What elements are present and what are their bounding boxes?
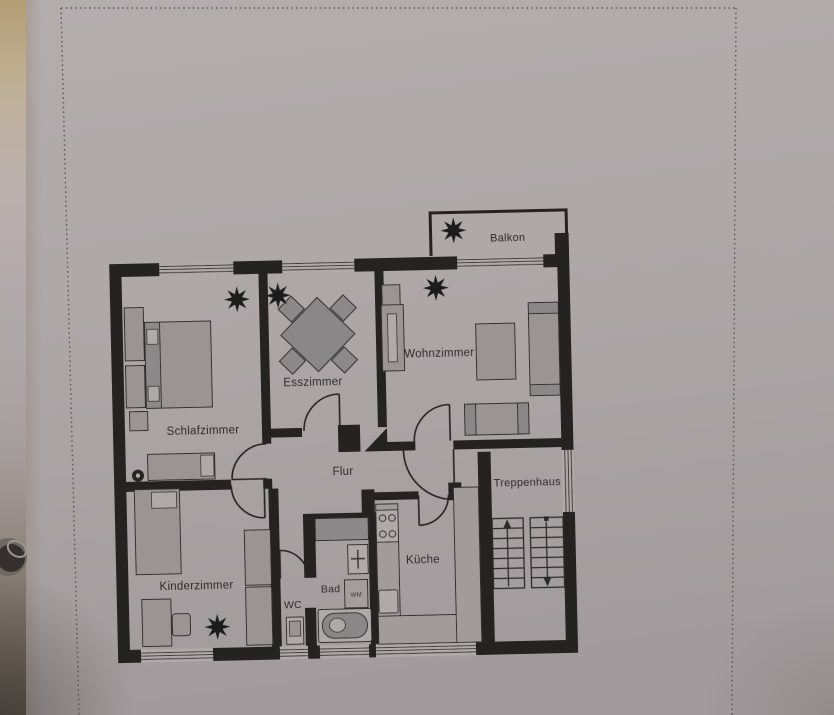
- label-washing-machine: WM: [350, 592, 362, 599]
- wall-kueche-corner-left: [361, 489, 375, 514]
- label-wohnzimmer: Wohnzimmer: [404, 347, 474, 361]
- sofa: [528, 302, 560, 396]
- bathtub: [318, 608, 372, 642]
- shelf-box: [382, 285, 400, 305]
- floor-plan-photo: Balkon Schlafzimmer Esszimmer Wohnzimmer…: [0, 0, 834, 715]
- nightstand: [124, 308, 144, 361]
- wall-wc-bad-lower: [305, 608, 317, 646]
- wall-flur-south: [374, 491, 418, 500]
- label-kueche: Küche: [406, 554, 440, 567]
- label-balkon: Balkon: [490, 232, 525, 245]
- kitchen-counter-right: [453, 487, 482, 643]
- wall-wc-bad-upper: [303, 514, 316, 578]
- stove: [376, 510, 399, 542]
- double-bed: [145, 321, 213, 408]
- label-flur: Flur: [332, 466, 353, 478]
- bath-vanity: [315, 517, 368, 540]
- shadow-bottom-left: [0, 400, 300, 715]
- dining-set: [278, 295, 358, 375]
- shadow-bottom-right: [500, 430, 834, 715]
- window-balkon-door: [457, 254, 543, 269]
- tv-unit: [381, 305, 404, 371]
- wall-balcony-anchor: [555, 233, 569, 254]
- floor-plan-canvas: Balkon Schlafzimmer Esszimmer Wohnzimmer…: [0, 0, 834, 715]
- kitchen-sink: [379, 590, 399, 613]
- coffee-table: [476, 323, 516, 380]
- window-esszimmer: [282, 259, 354, 274]
- bathroom-sink: [348, 544, 369, 573]
- wall-wohn-bottom-left: [387, 441, 415, 451]
- window-schlafzimmer: [159, 261, 233, 276]
- window-bad: [320, 644, 369, 658]
- wall-center-chunk: [338, 425, 361, 452]
- label-bad: Bad: [321, 583, 341, 595]
- label-esszimmer: Esszimmer: [283, 376, 342, 389]
